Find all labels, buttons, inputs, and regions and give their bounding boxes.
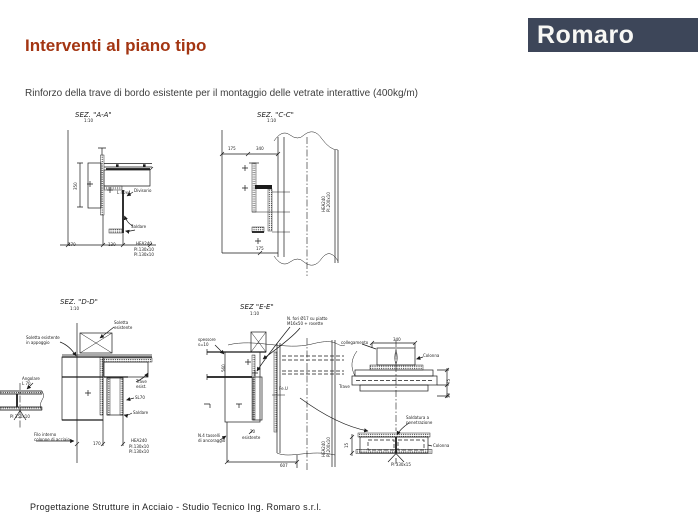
cad-annotation: 170 [68,243,76,248]
company-logo-text: Romaro [528,21,634,50]
cad-annotation: 350 [74,182,79,190]
cad-annotation: 1:10 [70,307,79,312]
cad-annotation: SL70 [135,396,145,401]
cad-annotation: Pl.130x10 [134,253,154,258]
cad-annotation: HEA240 [136,242,152,247]
cad-annotation: Saldare [133,411,148,416]
cad-annotation: 340 [256,147,264,152]
cad-annotation: di ancoraggio [198,439,225,444]
cad-annotation: 130 [108,243,116,248]
section-label-dd: SEZ. "D-D" [60,298,98,306]
cad-annotation: L 70 [22,382,31,387]
cad-annotation: 607 [280,464,288,469]
cad-annotation: Pl 350x10 [10,415,30,420]
cad-annotation: 75 [447,379,452,384]
cad-annotation: 560 [222,364,227,372]
cad-annotation: in appoggio [26,341,50,346]
cad-annotation: 30 [447,393,452,398]
drawing-sez-ee [204,327,368,470]
cad-annotation: 340 [393,338,401,343]
cad-annotation: 1:10 [250,312,259,317]
cad-annotation: 1:10 [267,119,276,124]
cad-annotation: 175 [256,247,264,252]
cad-annotation: 15 [345,443,350,448]
cad-annotation: Colonna [433,444,449,449]
cad-annotation: penetrazione [406,421,432,426]
cad-drawings [0,0,700,525]
cad-annotation: esistente [114,326,132,331]
cad-annotation: Colonna [423,354,439,359]
page-title: Interventi al piano tipo [25,36,206,56]
company-logo: Romaro [528,18,698,52]
drawing-sez-dd [0,323,152,463]
section-label-aa: SEZ. "A-A" [75,111,112,119]
cad-annotation: esistente [242,436,260,441]
cad-annotation: 170 [93,442,101,447]
cad-annotation: Pl 330x15 [391,463,411,468]
cad-annotation: Pl.130x10 [129,450,149,455]
cad-annotation: Pl.200x10 [327,437,332,457]
cad-annotation: esist. [136,385,147,390]
cad-annotation: Fe.U [279,387,288,392]
cad-annotation: Divisorio [134,189,151,194]
section-label-ee: SEZ "E-E" [240,303,274,311]
cad-annotation: Trave [339,385,350,390]
cad-annotation: M16x50 + rosette [287,322,323,327]
detail-splice-bottom [350,423,432,464]
cad-annotation: 1:10 [84,119,93,124]
cad-annotation: HEA240 [131,439,147,444]
cad-annotation: Pl.200x10 [327,192,332,212]
slide-page: { "page": { "title": "Interventi al pian… [0,0,700,525]
cad-annotation: colonne di acciaio [34,438,70,443]
cad-annotation: collegamento [341,341,368,346]
cad-annotation: 20 [250,430,255,435]
cad-annotation: s=10 [198,343,209,348]
cad-annotation: L 40x4 [117,191,131,196]
footer-text: Progettazione Strutture in Acciaio - Stu… [30,502,321,512]
cad-annotation: Saldare [131,225,146,230]
slide-subtitle: Rinforzo della trave di bordo esistente … [25,88,418,99]
cad-annotation: 175 [228,147,236,152]
